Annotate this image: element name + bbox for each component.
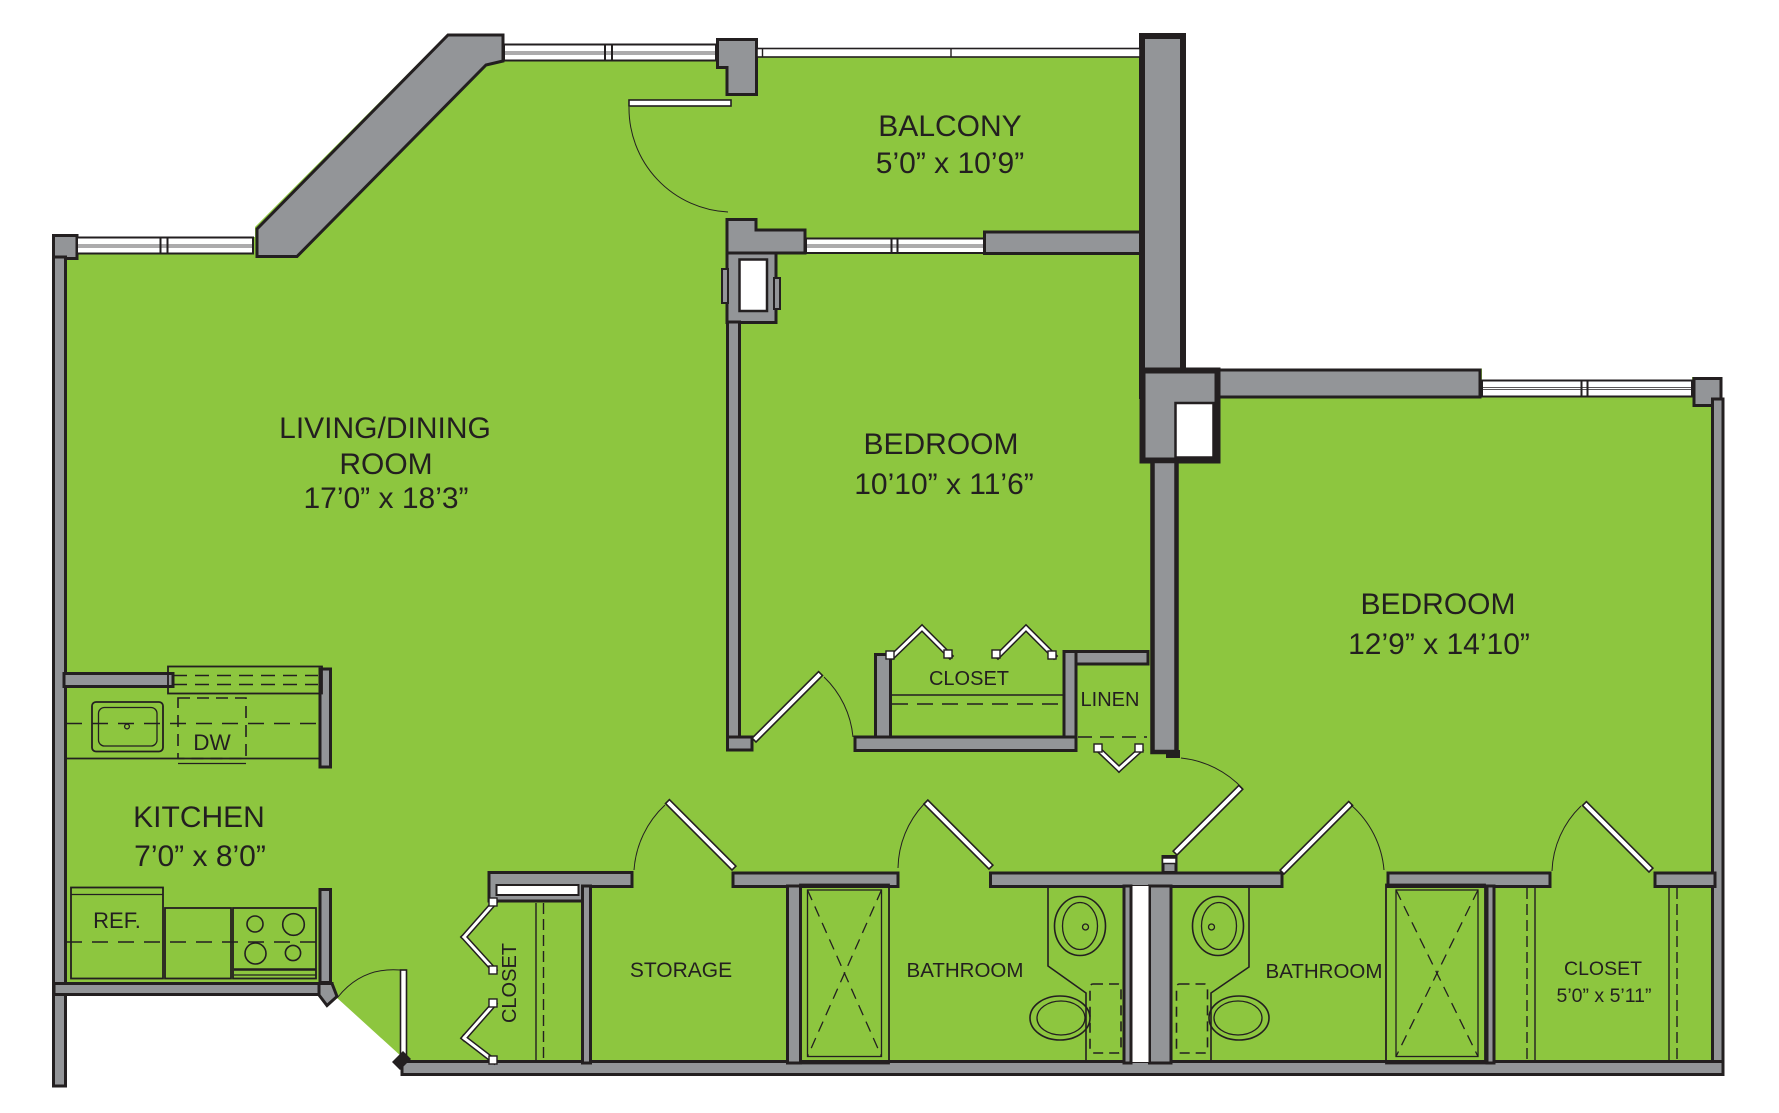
svg-text:REF.: REF. xyxy=(93,908,141,933)
svg-text:CLOSET: CLOSET xyxy=(1564,958,1642,980)
svg-text:BALCONY: BALCONY xyxy=(878,110,1021,143)
svg-text:7’0” x 8’0”: 7’0” x 8’0” xyxy=(134,840,266,873)
svg-text:ROOM: ROOM xyxy=(339,448,432,481)
svg-text:LIVING/DINING: LIVING/DINING xyxy=(279,412,491,445)
svg-text:KITCHEN: KITCHEN xyxy=(133,801,265,834)
svg-text:BATHROOM: BATHROOM xyxy=(1266,960,1383,983)
svg-text:12’9” x 14’10”: 12’9” x 14’10” xyxy=(1348,628,1530,661)
svg-text:BATHROOM: BATHROOM xyxy=(907,959,1024,982)
svg-text:10’10” x 11’6”: 10’10” x 11’6” xyxy=(854,468,1034,501)
svg-text:LINEN: LINEN xyxy=(1081,689,1140,711)
svg-text:5’0” x 10’9”: 5’0” x 10’9” xyxy=(876,147,1024,180)
svg-text:17’0” x 18’3”: 17’0” x 18’3” xyxy=(303,482,468,515)
svg-text:BEDROOM: BEDROOM xyxy=(863,428,1018,461)
svg-text:5’0” x 5’11”: 5’0” x 5’11” xyxy=(1556,985,1651,1007)
svg-text:CLOSET: CLOSET xyxy=(929,668,1009,690)
svg-text:BEDROOM: BEDROOM xyxy=(1360,588,1515,621)
svg-text:CLOSET: CLOSET xyxy=(499,943,521,1023)
svg-text:STORAGE: STORAGE xyxy=(630,959,732,982)
svg-text:DW: DW xyxy=(193,730,231,755)
